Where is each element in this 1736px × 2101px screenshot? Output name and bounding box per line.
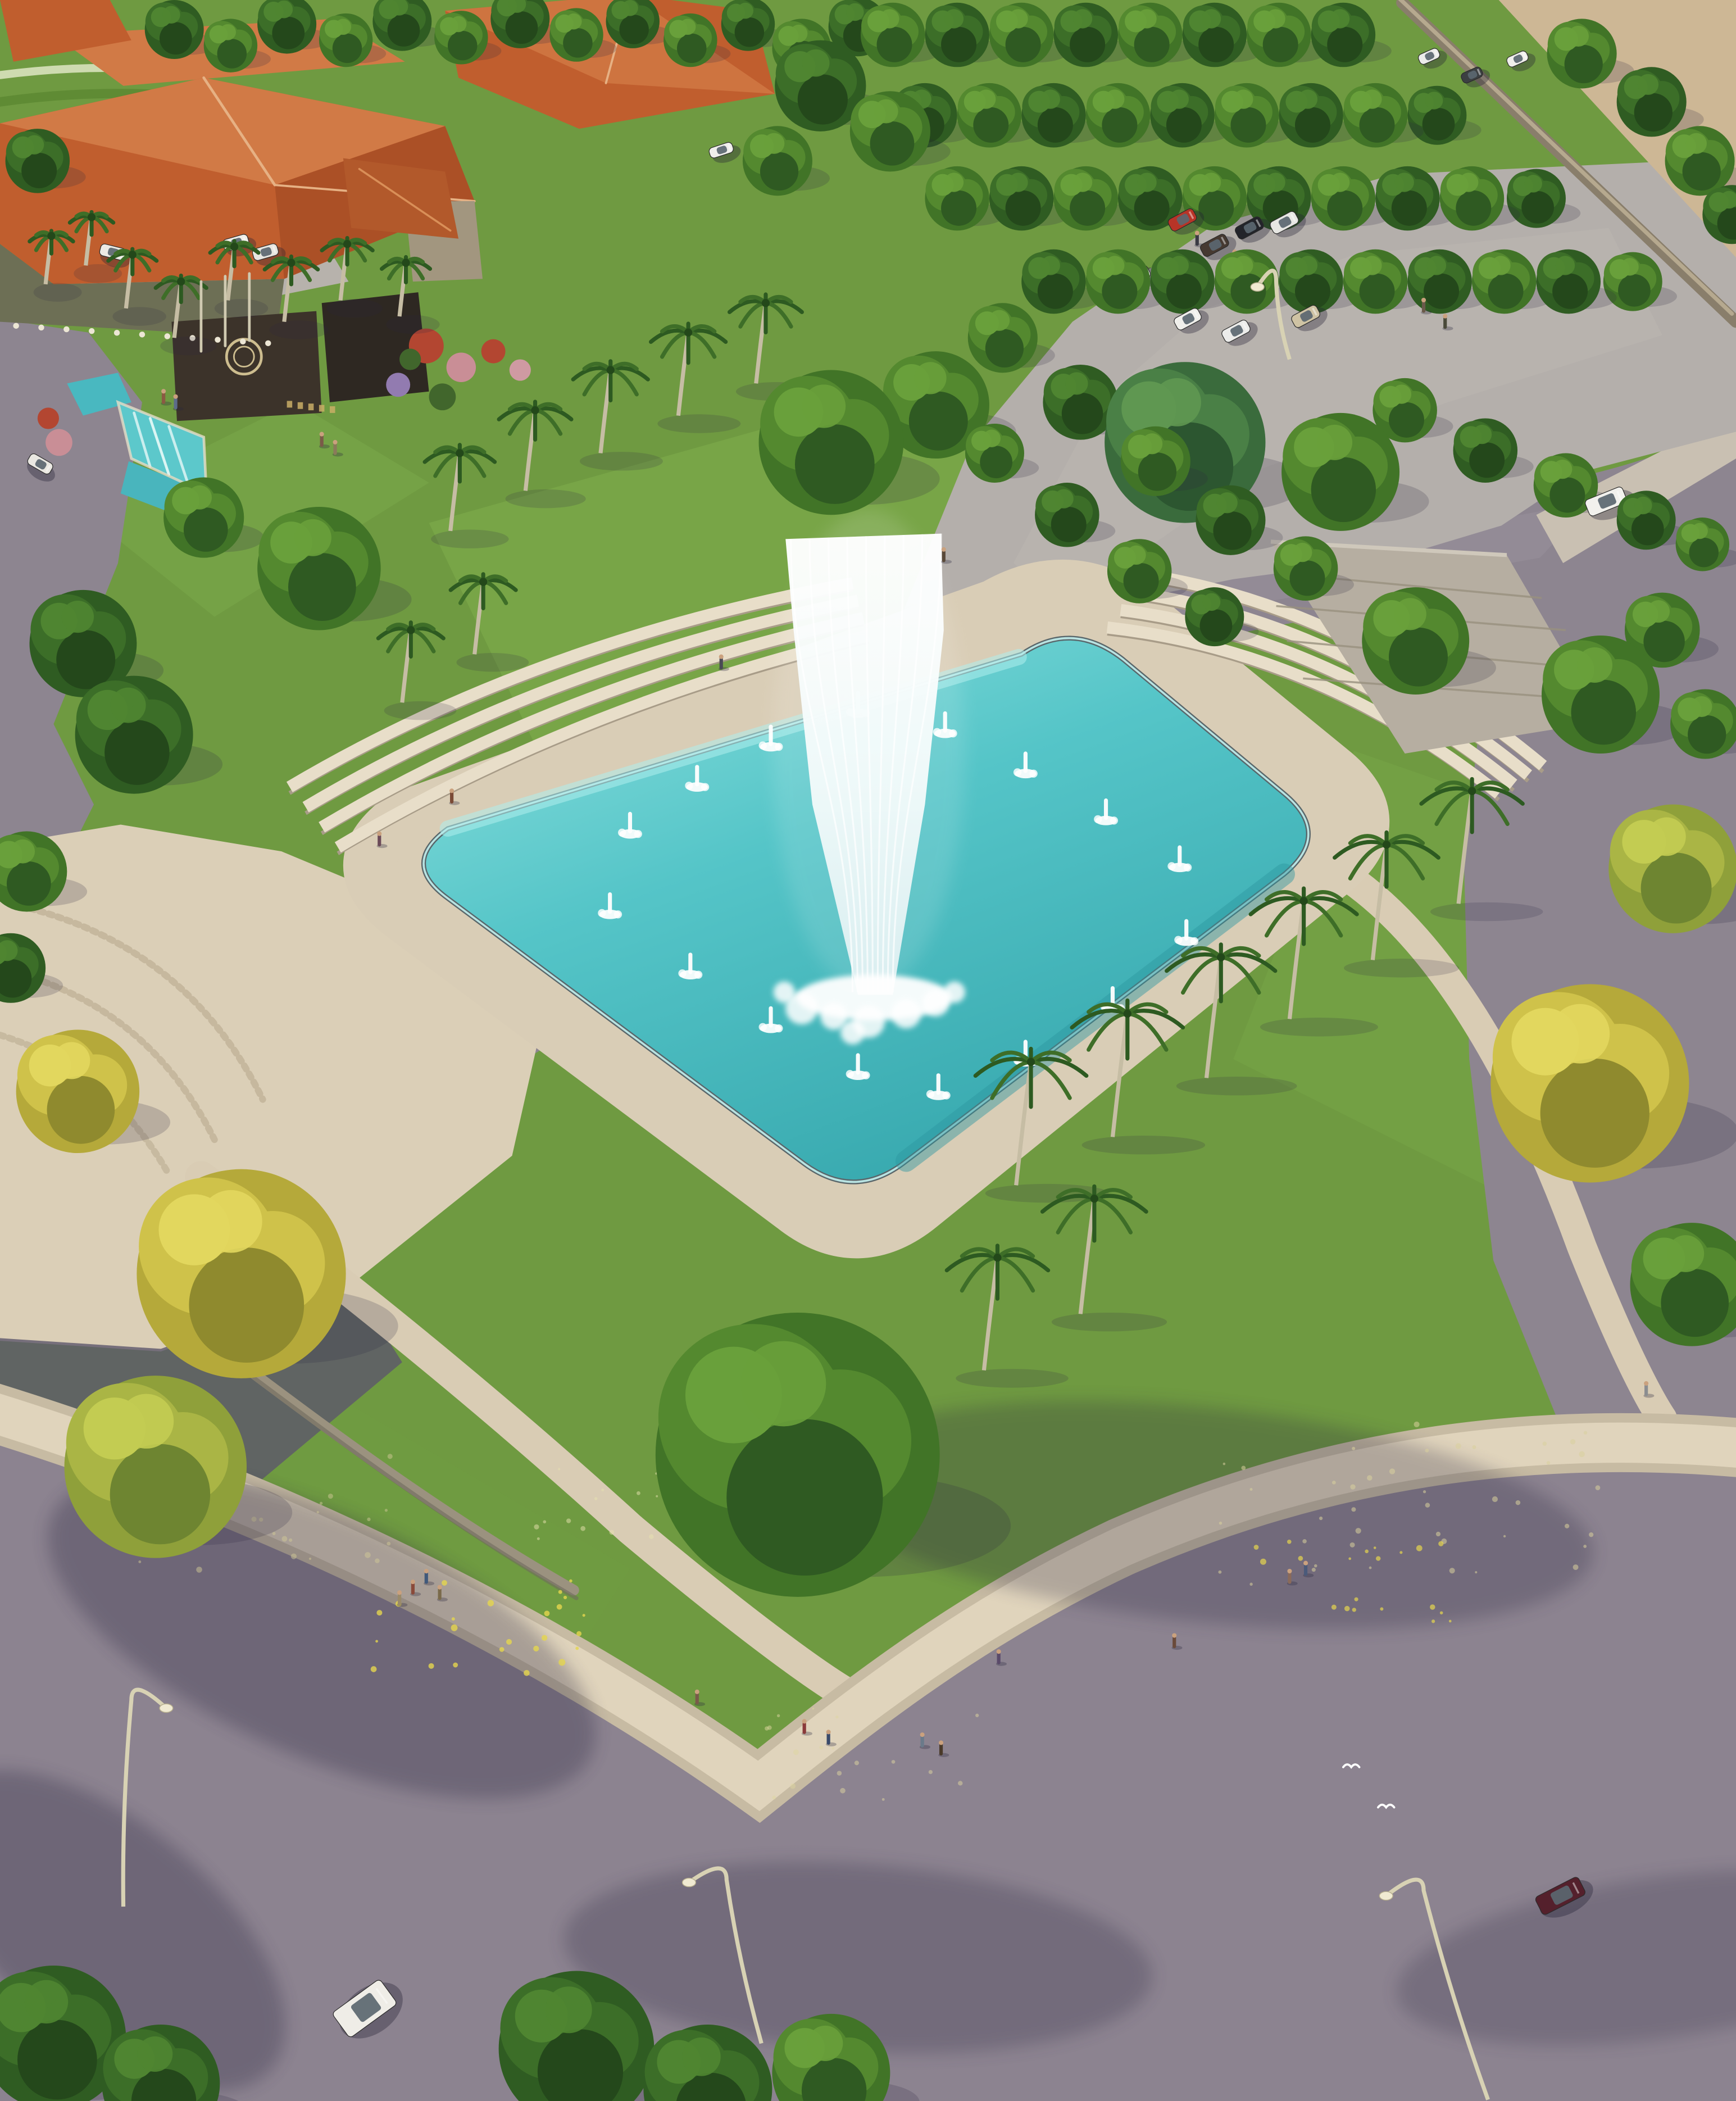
speckle bbox=[1351, 1507, 1356, 1512]
speckle bbox=[563, 1596, 567, 1599]
canopy bbox=[1134, 27, 1170, 62]
colonnade-column bbox=[89, 328, 94, 334]
canopy-highlight bbox=[25, 135, 44, 155]
canopy bbox=[1632, 513, 1664, 546]
canopy-highlight bbox=[1008, 9, 1028, 28]
jet-foam bbox=[634, 830, 642, 838]
canopy bbox=[1392, 190, 1427, 226]
canopy bbox=[1549, 477, 1585, 512]
palm-crown bbox=[287, 259, 295, 267]
jet-foam bbox=[694, 971, 702, 979]
palm-shadow bbox=[384, 701, 457, 720]
canopy bbox=[1051, 507, 1087, 542]
canopy-highlight bbox=[1568, 26, 1589, 47]
speckle bbox=[765, 1726, 769, 1730]
palm-crown bbox=[88, 213, 96, 221]
canopy-highlight bbox=[1550, 1004, 1610, 1064]
sign-glyph-2 bbox=[298, 402, 303, 409]
jet-foam bbox=[1190, 937, 1198, 945]
palm-shadow bbox=[1260, 1018, 1378, 1036]
canopy bbox=[184, 507, 228, 552]
canopy bbox=[272, 17, 305, 49]
canopy-highlight bbox=[944, 9, 964, 28]
palm-shadow bbox=[1430, 902, 1543, 921]
canopy bbox=[1198, 27, 1234, 62]
jet-foam bbox=[598, 909, 606, 917]
lamp-head bbox=[160, 1704, 173, 1712]
canopy-highlight bbox=[1170, 256, 1189, 275]
palm-shadow bbox=[386, 315, 439, 334]
canopy-highlight bbox=[1293, 543, 1312, 562]
palm-shadow bbox=[326, 299, 383, 317]
speckle bbox=[840, 1788, 846, 1794]
speckle bbox=[772, 1795, 776, 1799]
scene-canvas bbox=[0, 0, 1736, 2101]
speckle bbox=[1543, 1441, 1547, 1445]
canopy bbox=[870, 121, 915, 166]
speckle bbox=[837, 1771, 842, 1776]
canopy-highlight bbox=[1330, 173, 1349, 192]
palm-shadow bbox=[1176, 1077, 1297, 1095]
canopy bbox=[1683, 152, 1721, 190]
palm-shadow bbox=[657, 414, 740, 433]
canopy-highlight bbox=[1621, 258, 1638, 275]
speckle bbox=[558, 1468, 560, 1470]
palm-shadow bbox=[74, 264, 122, 283]
person-head bbox=[695, 1690, 699, 1694]
speckle bbox=[575, 1646, 579, 1650]
speckle bbox=[892, 1760, 896, 1764]
lamp-head bbox=[1251, 283, 1264, 291]
speckle bbox=[812, 1708, 815, 1710]
speckle bbox=[1254, 1545, 1259, 1550]
speckle bbox=[1344, 1606, 1350, 1612]
speckle bbox=[1596, 1485, 1601, 1490]
canopy-highlight bbox=[1317, 425, 1352, 460]
speckle bbox=[558, 1590, 562, 1594]
person-head bbox=[161, 389, 166, 393]
person-head bbox=[411, 1580, 415, 1584]
speckle bbox=[1369, 1567, 1372, 1569]
canopy bbox=[1618, 274, 1651, 307]
canopy-highlight bbox=[1105, 256, 1124, 275]
canopy bbox=[333, 34, 362, 63]
speckle bbox=[1298, 1556, 1303, 1561]
speckle bbox=[790, 1784, 796, 1789]
palm-crown bbox=[762, 299, 770, 307]
jet-foam bbox=[775, 1024, 783, 1032]
canopy bbox=[189, 1247, 304, 1363]
person-head bbox=[1303, 1561, 1308, 1565]
speckle bbox=[1287, 1540, 1292, 1544]
palm-crown bbox=[230, 243, 238, 251]
colonnade-column bbox=[13, 323, 19, 329]
canopy-highlight bbox=[741, 1341, 826, 1427]
speckle bbox=[1352, 1447, 1355, 1450]
speckle bbox=[1319, 1517, 1323, 1520]
canopy bbox=[1289, 560, 1325, 596]
canopy bbox=[1124, 563, 1159, 598]
jet-foam bbox=[1030, 770, 1038, 778]
speckle bbox=[281, 1536, 287, 1542]
canopy bbox=[1198, 190, 1234, 226]
person-head bbox=[997, 1649, 1001, 1654]
canopy-highlight bbox=[1153, 378, 1201, 426]
canopy bbox=[21, 153, 57, 188]
speckle bbox=[1416, 1545, 1423, 1551]
speckle bbox=[385, 1509, 388, 1512]
speckle bbox=[1503, 1535, 1506, 1537]
speckle bbox=[975, 1714, 979, 1717]
canopy-highlight bbox=[1170, 89, 1189, 108]
canopy-highlight bbox=[1202, 173, 1221, 192]
canopy-highlight bbox=[1073, 9, 1092, 28]
canopy bbox=[909, 392, 968, 451]
jet-foam bbox=[926, 1090, 934, 1098]
canopy bbox=[1552, 274, 1588, 309]
palm-crown bbox=[1027, 1058, 1035, 1066]
canopy-highlight bbox=[846, 3, 864, 21]
person-head bbox=[939, 1740, 943, 1745]
speckle bbox=[138, 1560, 141, 1563]
canopy bbox=[1643, 621, 1684, 662]
canopy bbox=[1102, 107, 1137, 143]
speckle bbox=[365, 1552, 371, 1558]
speckle bbox=[1314, 1564, 1317, 1568]
canopy bbox=[735, 17, 764, 47]
aerial-park-fountain-render bbox=[0, 0, 1736, 2101]
canopy bbox=[677, 34, 706, 63]
jet-foam bbox=[1110, 816, 1118, 824]
canopy bbox=[1661, 1269, 1729, 1337]
canopy bbox=[1327, 190, 1362, 226]
speckle bbox=[1414, 1422, 1420, 1427]
speckle bbox=[1573, 1564, 1579, 1570]
canopy bbox=[104, 720, 169, 784]
canopy bbox=[56, 630, 115, 689]
jet-foam bbox=[678, 969, 686, 977]
canopy-highlight bbox=[764, 133, 784, 154]
palm-crown bbox=[407, 626, 415, 634]
speckle bbox=[958, 1781, 962, 1785]
jet-foam bbox=[942, 1091, 950, 1099]
speckle bbox=[929, 1770, 933, 1774]
canopy bbox=[1038, 274, 1073, 309]
person-head bbox=[438, 1585, 442, 1590]
canopy bbox=[1389, 402, 1424, 438]
speckle bbox=[196, 1567, 202, 1573]
speckle bbox=[656, 1495, 658, 1498]
person-head bbox=[1421, 298, 1426, 302]
speckle bbox=[1260, 1559, 1266, 1565]
canopy bbox=[941, 190, 976, 226]
canopy-highlight bbox=[1234, 256, 1253, 275]
person-head bbox=[397, 1590, 402, 1595]
speckle bbox=[499, 1647, 505, 1652]
canopy bbox=[7, 861, 51, 906]
speckle bbox=[388, 1454, 393, 1459]
canopy bbox=[1263, 27, 1298, 62]
speckle bbox=[1355, 1598, 1358, 1601]
speckle bbox=[1430, 1604, 1435, 1610]
canopy bbox=[1423, 108, 1455, 140]
fountain-foam bbox=[944, 982, 965, 1003]
speckle bbox=[1579, 1451, 1584, 1457]
sign-glyph-3 bbox=[308, 403, 314, 410]
colonnade-column bbox=[265, 341, 271, 346]
speckle bbox=[1431, 1619, 1435, 1623]
canopy-highlight bbox=[1008, 173, 1028, 192]
canopy-highlight bbox=[790, 25, 807, 42]
speckle bbox=[291, 1554, 297, 1559]
colonnade-column bbox=[139, 332, 145, 337]
speckle bbox=[580, 1526, 585, 1531]
canopy-highlight bbox=[1691, 696, 1712, 717]
speckle bbox=[1223, 1463, 1226, 1465]
canopy-highlight bbox=[983, 430, 1000, 447]
palm-shadow bbox=[456, 653, 529, 671]
colonnade-column bbox=[38, 325, 44, 330]
canopy bbox=[1102, 274, 1137, 309]
jet-foam bbox=[759, 742, 767, 750]
speckle bbox=[1219, 1522, 1223, 1525]
canopy-highlight bbox=[11, 840, 35, 864]
canopy bbox=[980, 446, 1012, 478]
speckle bbox=[1376, 1556, 1380, 1560]
palm-crown bbox=[1124, 1010, 1131, 1018]
flowerbed-pink-1 bbox=[447, 353, 476, 382]
canopy bbox=[1565, 45, 1603, 83]
canopy bbox=[388, 14, 420, 47]
palm-crown bbox=[479, 578, 487, 586]
canopy bbox=[1166, 274, 1202, 309]
canopy bbox=[288, 553, 356, 621]
canopy-highlight bbox=[1041, 256, 1060, 275]
palm-crown bbox=[1090, 1195, 1098, 1202]
speckle bbox=[1425, 1449, 1429, 1453]
speckle bbox=[1350, 1542, 1355, 1548]
speckle bbox=[576, 1631, 581, 1636]
canopy bbox=[1295, 107, 1330, 143]
canopy bbox=[1571, 680, 1636, 745]
canopy-highlight bbox=[1137, 173, 1156, 192]
speckle bbox=[534, 1524, 539, 1530]
palm-crown bbox=[531, 406, 539, 414]
canopy-highlight bbox=[622, 0, 638, 16]
flowerbed-hedge-1 bbox=[429, 383, 456, 410]
speckle bbox=[637, 1491, 640, 1495]
canopy-highlight bbox=[1065, 372, 1088, 394]
person-head bbox=[1443, 314, 1447, 319]
person-head bbox=[1172, 1633, 1176, 1637]
palm-shadow bbox=[580, 452, 663, 470]
flowerbed-red-3 bbox=[38, 407, 59, 429]
speckle bbox=[1440, 1611, 1443, 1614]
person-head bbox=[1287, 1569, 1292, 1573]
speckle bbox=[583, 1614, 585, 1617]
canopy bbox=[448, 31, 477, 60]
canopy-highlight bbox=[1203, 593, 1220, 611]
canopy-highlight bbox=[199, 1190, 262, 1253]
canopy-highlight bbox=[802, 384, 846, 428]
speckle bbox=[488, 1600, 494, 1606]
jet-foam bbox=[1014, 768, 1021, 776]
canopy-highlight bbox=[914, 362, 946, 394]
speckle bbox=[1565, 1524, 1569, 1528]
speckle bbox=[1547, 1461, 1551, 1465]
speckle bbox=[1475, 1571, 1477, 1573]
canopy-highlight bbox=[1234, 89, 1253, 108]
speckle bbox=[1449, 1568, 1455, 1573]
palm-shadow bbox=[1344, 959, 1459, 977]
speckle bbox=[542, 1635, 547, 1641]
colonnade-column bbox=[63, 326, 69, 332]
speckle bbox=[1249, 1583, 1252, 1586]
person-head bbox=[826, 1730, 831, 1734]
jet-foam bbox=[846, 1070, 854, 1078]
canopy-highlight bbox=[25, 1980, 68, 2023]
canopy-highlight bbox=[1553, 460, 1572, 479]
speckle bbox=[1218, 1571, 1221, 1574]
palm-shadow bbox=[112, 307, 166, 325]
canopy bbox=[217, 39, 247, 68]
canopy-highlight bbox=[802, 49, 830, 77]
canopy-highlight bbox=[1647, 818, 1686, 856]
speckle bbox=[557, 1604, 562, 1610]
palm-crown bbox=[402, 259, 410, 267]
canopy-highlight bbox=[1634, 497, 1652, 514]
palm-crown bbox=[607, 366, 615, 374]
person-head bbox=[802, 1719, 807, 1723]
canopy bbox=[17, 2020, 97, 2100]
canopy-highlight bbox=[1638, 74, 1658, 95]
canopy bbox=[1070, 27, 1105, 62]
speckle bbox=[387, 1542, 390, 1546]
speckle bbox=[429, 1663, 434, 1669]
canopy-highlight bbox=[1667, 1235, 1704, 1272]
speckle bbox=[558, 1659, 565, 1666]
canopy bbox=[798, 74, 848, 124]
canopy-highlight bbox=[1266, 9, 1285, 28]
fountain-foam bbox=[774, 982, 795, 1003]
speckle bbox=[453, 1663, 458, 1668]
canopy-highlight bbox=[880, 9, 899, 28]
canopy-highlight bbox=[1686, 133, 1707, 154]
canopy-highlight bbox=[1330, 9, 1349, 28]
palm-crown bbox=[993, 1254, 1001, 1261]
speckle bbox=[1367, 1475, 1373, 1481]
speckle bbox=[375, 1558, 380, 1563]
sign-glyph-1 bbox=[287, 401, 293, 407]
jet-foam bbox=[685, 782, 693, 789]
speckle bbox=[320, 1502, 322, 1505]
palm-shadow bbox=[431, 530, 508, 548]
canopy-highlight bbox=[137, 2036, 172, 2072]
flowerbed-purple bbox=[386, 373, 410, 397]
canopy bbox=[1166, 107, 1202, 143]
speckle bbox=[1570, 1439, 1575, 1444]
canopy-highlight bbox=[188, 485, 212, 510]
canopy-highlight bbox=[1266, 173, 1285, 192]
colonnade-column bbox=[165, 333, 170, 339]
canopy-highlight bbox=[989, 310, 1010, 331]
speckle bbox=[367, 1518, 370, 1521]
speckle bbox=[1399, 1551, 1402, 1554]
canopy-highlight bbox=[1491, 256, 1510, 275]
palm-shadow bbox=[1052, 1313, 1167, 1331]
canopy bbox=[1456, 190, 1491, 226]
speckle bbox=[1438, 1541, 1443, 1546]
colonnade-column bbox=[215, 337, 220, 342]
speckle bbox=[1332, 1481, 1336, 1485]
speckle bbox=[819, 1745, 823, 1749]
canopy-highlight bbox=[1073, 173, 1092, 192]
canopy-highlight bbox=[1647, 600, 1670, 623]
colonnade-column bbox=[114, 330, 120, 335]
speckle bbox=[1380, 1607, 1383, 1610]
palm-shadow bbox=[270, 320, 329, 339]
speckle bbox=[1516, 1500, 1521, 1505]
canopy-highlight bbox=[162, 6, 180, 23]
canopy-highlight bbox=[976, 89, 996, 108]
speckle bbox=[566, 1518, 571, 1523]
canopy-highlight bbox=[680, 19, 696, 35]
canopy-highlight bbox=[1217, 492, 1238, 513]
canopy-highlight bbox=[1126, 546, 1146, 565]
sign-glyph-5 bbox=[330, 406, 335, 413]
speckle bbox=[1583, 1545, 1587, 1548]
palm-shadow bbox=[215, 299, 268, 317]
person-head bbox=[942, 547, 946, 552]
speckle bbox=[1352, 1608, 1356, 1612]
speckle bbox=[610, 1530, 615, 1535]
canopy bbox=[1006, 190, 1041, 226]
palm-crown bbox=[47, 232, 55, 240]
canopy-highlight bbox=[944, 173, 964, 192]
canopy-highlight bbox=[1362, 89, 1381, 108]
canopy-highlight bbox=[62, 601, 94, 633]
person-head bbox=[920, 1732, 925, 1737]
canopy bbox=[1134, 190, 1170, 226]
palm-crown bbox=[343, 240, 351, 248]
canopy bbox=[1230, 107, 1266, 143]
speckle bbox=[1331, 1605, 1337, 1610]
speckle bbox=[1425, 1503, 1430, 1508]
colonnade-column bbox=[240, 338, 246, 344]
canopy-highlight bbox=[1459, 173, 1478, 192]
speckle bbox=[289, 1539, 292, 1542]
canopy-highlight bbox=[807, 2026, 843, 2061]
speckle bbox=[328, 1494, 333, 1499]
canopy-highlight bbox=[1298, 89, 1317, 108]
canopy-highlight bbox=[1427, 256, 1446, 275]
canopy-highlight bbox=[53, 1042, 90, 1079]
person-head bbox=[377, 832, 381, 836]
palm-crown bbox=[129, 251, 137, 258]
canopy-highlight bbox=[1394, 173, 1414, 192]
speckle bbox=[1456, 1443, 1461, 1449]
canopy-highlight bbox=[1692, 523, 1708, 539]
speckle bbox=[1492, 1496, 1498, 1502]
speckle bbox=[594, 1497, 598, 1500]
speckle bbox=[855, 1760, 859, 1765]
canopy-highlight bbox=[1362, 256, 1381, 275]
canopy-highlight bbox=[682, 2038, 721, 2076]
jet-foam bbox=[862, 1071, 870, 1079]
flowerbed-red-2 bbox=[481, 339, 506, 364]
canopy bbox=[1038, 107, 1073, 143]
canopy bbox=[1311, 457, 1376, 522]
